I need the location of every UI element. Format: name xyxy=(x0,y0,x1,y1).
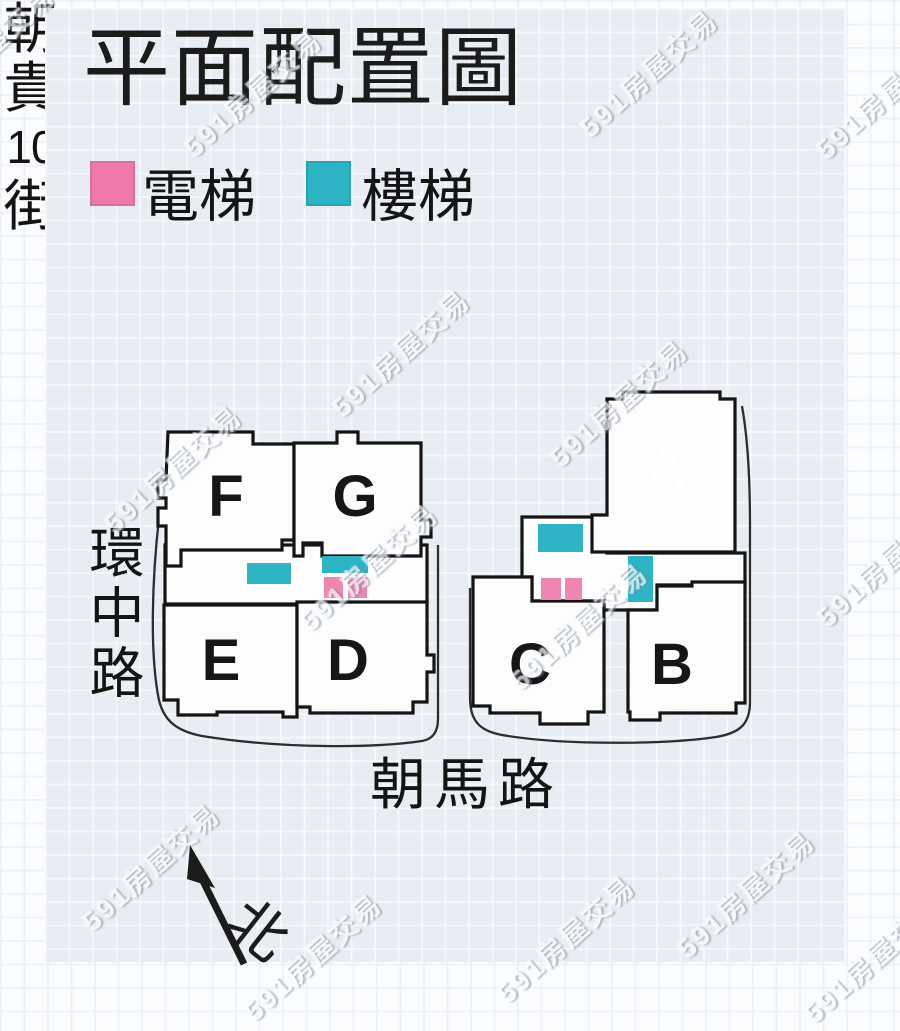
north-label: 北 xyxy=(215,887,301,974)
site-plan-map: A B C D E F G 北 xyxy=(0,0,900,974)
elevator-G-1 xyxy=(324,577,343,598)
building-C-label: C xyxy=(509,632,551,697)
building-G-label: G xyxy=(332,464,377,529)
stair-A xyxy=(538,524,583,552)
north-arrow-icon: 北 xyxy=(187,845,301,974)
building-A-label: A xyxy=(646,437,688,502)
stair-AB xyxy=(628,556,653,602)
building-D-label: D xyxy=(327,628,369,693)
stair-G xyxy=(322,556,368,573)
elevator-C-2 xyxy=(565,578,582,600)
stair-F xyxy=(247,563,291,584)
elevator-C-1 xyxy=(541,578,561,600)
elevator-G-2 xyxy=(348,577,367,598)
building-F-label: F xyxy=(208,464,243,529)
building-B-label: B xyxy=(651,632,693,697)
building-E-label: E xyxy=(202,628,241,693)
